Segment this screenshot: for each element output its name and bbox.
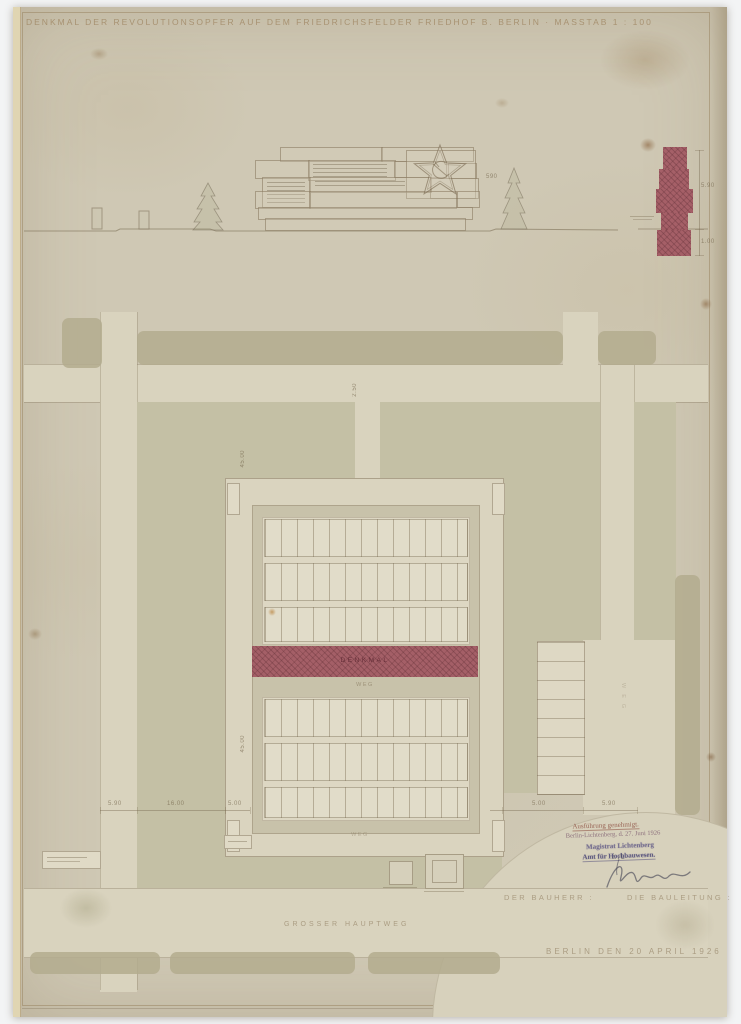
scanned-drawing-page: { "sheet": { "title": "DENKMAL DER REVOL… — [0, 0, 741, 1024]
plot-corner-marker — [492, 483, 505, 515]
monument-base-block — [265, 218, 466, 231]
path-stub — [563, 312, 598, 365]
elevation-height-dimension: 590 — [486, 174, 498, 180]
lawn-panel — [380, 402, 600, 478]
section-block — [659, 169, 689, 189]
date-caption: BERLIN DEN 20 APRIL 1926 — [546, 947, 722, 956]
grave-post — [92, 208, 102, 229]
plan-label-box — [42, 851, 101, 869]
dimension-label-vertical: 45.00 — [240, 735, 246, 753]
dimension-label: 5.00 — [228, 801, 242, 807]
hedge-clump — [62, 318, 102, 368]
grave-row — [264, 563, 468, 601]
monument-footprint-label: DENKMAL — [335, 657, 395, 664]
sheet-title: DENKMAL DER REVOLUTIONSOPFER AUF DEM FRI… — [26, 17, 653, 27]
structure-label-line — [424, 891, 464, 892]
inscription-text-lines — [313, 164, 387, 177]
dimension-label: 5.90 — [602, 801, 616, 807]
section-block — [661, 213, 688, 230]
section-note-line — [633, 219, 652, 220]
dimension-line — [100, 810, 250, 811]
plot-corner-marker — [492, 820, 505, 852]
inscription-text-lines — [315, 181, 405, 189]
small-structure — [425, 854, 464, 889]
grave-row — [264, 607, 468, 642]
dimension-label: 5.00 — [532, 801, 546, 807]
hedge-band — [598, 331, 656, 365]
hedge-band — [30, 952, 160, 974]
tree-icon — [501, 168, 527, 229]
dimension-tick — [695, 255, 704, 256]
small-structure — [389, 861, 413, 885]
dimension-tick — [695, 150, 704, 151]
signature-scrawl — [595, 845, 705, 900]
client-caption: DER BAUHERR : — [504, 893, 594, 902]
central-approach-path — [355, 402, 380, 480]
right-path-label: WEG — [620, 683, 626, 714]
star-hammer-sickle-icon — [408, 142, 474, 200]
section-height-dimension: 5.90 — [701, 183, 715, 189]
grave-row — [264, 743, 468, 781]
dimension-line — [490, 810, 638, 811]
grave-row — [264, 699, 468, 737]
dimension-label: 5.90 — [108, 801, 122, 807]
lawn-panel — [137, 402, 355, 478]
grave-row — [264, 787, 468, 818]
lawn-panel — [502, 643, 537, 793]
small-structure-inner — [432, 860, 457, 883]
section-note-line — [630, 216, 654, 217]
supervision-caption: DIE BAULEITUNG : — [627, 893, 732, 902]
hedge-band — [368, 952, 500, 974]
section-dimension-line — [699, 150, 700, 256]
main-road-label: GROSSER HAUPTWEG — [284, 921, 409, 928]
dimension-label: 16.00 — [167, 801, 185, 807]
hedge-band — [170, 952, 355, 974]
hedge-band-vertical — [675, 575, 700, 815]
tree-icon — [193, 183, 223, 230]
section-block — [656, 189, 693, 213]
section-block — [663, 147, 687, 169]
path-label: WEG — [335, 682, 395, 688]
grave-row — [264, 519, 468, 557]
plot-path-label: WEG — [330, 832, 390, 838]
section-foundation-block — [657, 230, 691, 256]
lawn-panel — [137, 478, 225, 888]
grave-row-strip — [537, 641, 585, 795]
dimension-label-vertical: 2.50 — [352, 383, 358, 397]
plot-corner-marker — [227, 483, 240, 515]
plan-label-box — [224, 835, 252, 849]
structure-label-line — [383, 887, 417, 888]
dimension-label-vertical: 45.00 — [240, 450, 246, 468]
hedge-band — [137, 331, 563, 365]
grave-post — [139, 211, 149, 229]
ruled-frame-bottom-line — [22, 1008, 708, 1009]
section-depth-dimension: 1.00 — [701, 239, 715, 245]
lawn-panel — [502, 478, 600, 643]
dimension-tick — [695, 229, 704, 230]
right-wide-path — [583, 640, 675, 815]
